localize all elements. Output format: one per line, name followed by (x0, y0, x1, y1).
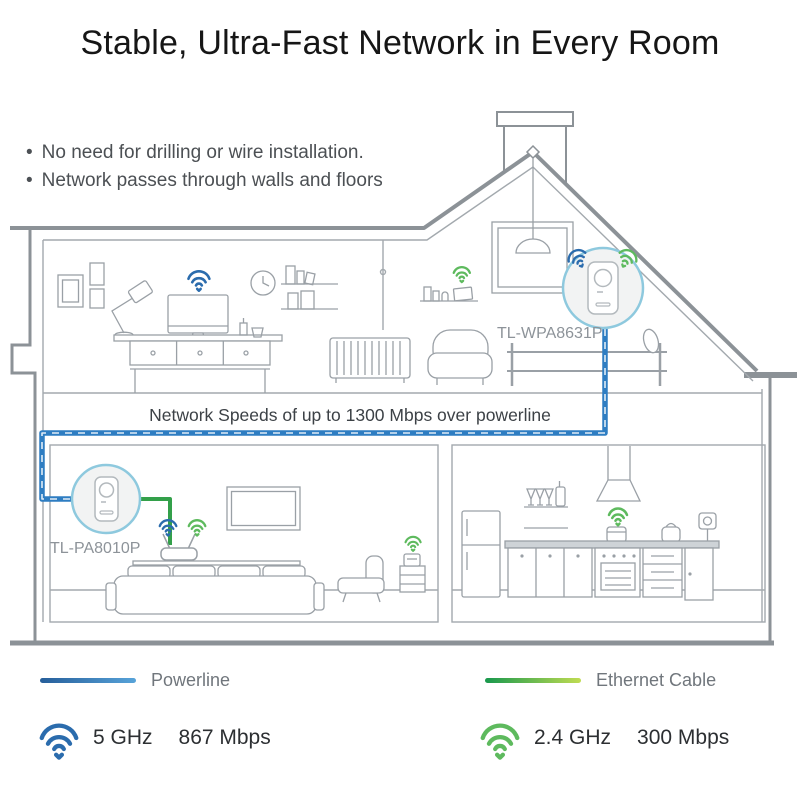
lower-device-label: TL-PA8010P (50, 540, 140, 558)
lounge-chair (338, 556, 384, 602)
powerline-adapter-upper (563, 247, 643, 328)
oven (595, 548, 640, 597)
nightstand (400, 554, 425, 592)
wall-clock (251, 271, 275, 295)
powerline-adapter-lower (72, 465, 140, 533)
wifi-router (161, 534, 197, 560)
kitchen-wifi-icon (609, 509, 627, 526)
desk-lamp (112, 280, 153, 338)
tablet-wifi-icon (454, 267, 470, 282)
cabinet-doors (508, 548, 592, 597)
nightstand-wifi-icon (406, 537, 421, 551)
leaning-mirror (641, 328, 661, 355)
legend-powerline: Powerline (40, 670, 230, 691)
glass-shelf (524, 481, 568, 528)
smart-pot (607, 527, 626, 542)
monitor-wifi-icon (188, 271, 209, 290)
countertop (505, 541, 719, 548)
smart-device (404, 554, 420, 566)
rate-label: 300 Mbps (637, 726, 729, 750)
powerline-legend-label: Powerline (151, 670, 230, 691)
powerline-legend-line (40, 678, 136, 683)
sideboard (114, 335, 282, 393)
range-hood (597, 446, 640, 501)
router-wifi-green-icon (189, 520, 206, 535)
page: Stable, Ultra-Fast Network in Every Room… (0, 0, 800, 800)
tall-cabinet (685, 548, 713, 600)
speed-5ghz: 5 GHz 867 Mbps (36, 716, 271, 760)
bottle (556, 487, 565, 506)
network-speed-banner: Network Speeds of up to 1300 Mbps over p… (70, 405, 630, 426)
sofa-bed (106, 566, 324, 614)
kitchen (462, 446, 719, 600)
rate-label: 867 Mbps (179, 726, 271, 750)
headboard-shelf (133, 561, 300, 565)
band-label: 5 GHz (93, 726, 153, 750)
candle-and-cup (240, 318, 263, 337)
drawer-unit (643, 548, 682, 597)
band-label: 2.4 GHz (534, 726, 611, 750)
power-outlet (699, 513, 716, 542)
speed-24ghz: 2.4 GHz 300 Mbps (477, 716, 729, 760)
tablet-shelf (420, 287, 478, 301)
wifi-24ghz-big-icon (477, 716, 523, 760)
legend-ethernet: Ethernet Cable (485, 670, 716, 691)
wall-shelves (281, 266, 338, 309)
wall-tv (227, 487, 300, 530)
upper-device-label: TL-WPA8631P (497, 325, 603, 343)
radiator (330, 338, 410, 383)
wall-frames (58, 263, 104, 308)
ethernet-legend-line (485, 678, 581, 683)
wifi-5ghz-big-icon (36, 716, 82, 760)
kettle (662, 524, 680, 543)
left-wall (12, 230, 35, 642)
fridge (462, 511, 500, 597)
ethernet-legend-label: Ethernet Cable (596, 670, 716, 691)
bedroom (106, 487, 425, 614)
desktop-monitor (168, 295, 228, 341)
armchair (428, 330, 492, 385)
